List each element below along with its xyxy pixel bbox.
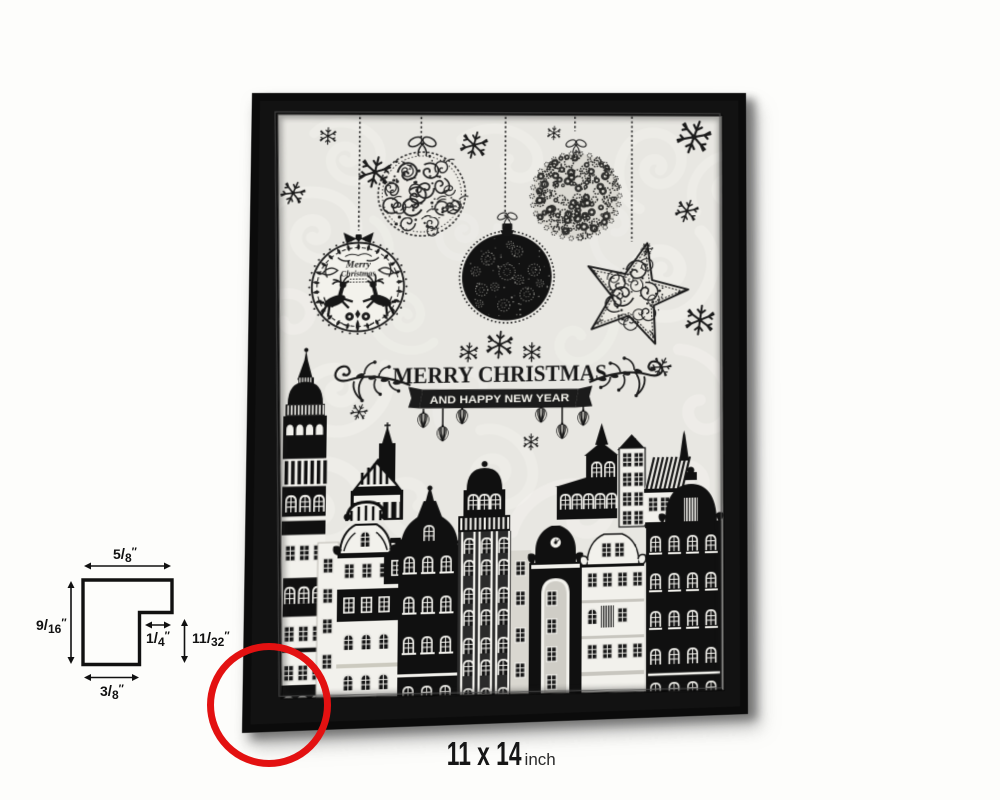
svg-text:5/8″: 5/8″ bbox=[113, 546, 138, 565]
svg-text:9/16″: 9/16″ bbox=[36, 617, 67, 636]
svg-text:MERRY CHRISTMAS: MERRY CHRISTMAS bbox=[392, 361, 606, 390]
svg-text:3/8″: 3/8″ bbox=[100, 683, 125, 702]
svg-text:11/32″: 11/32″ bbox=[192, 630, 230, 649]
svg-text:1/4″: 1/4″ bbox=[146, 630, 171, 649]
